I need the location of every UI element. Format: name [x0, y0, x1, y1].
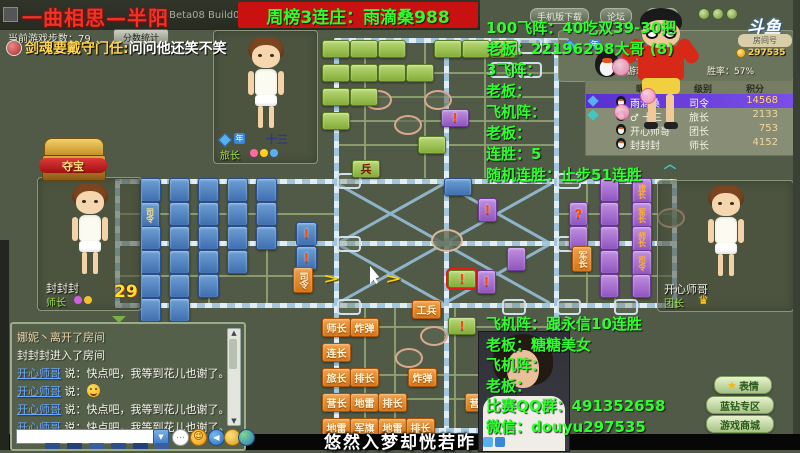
ranking-score: 2133 [734, 109, 778, 120]
board-slot[interactable] [337, 236, 361, 252]
side-button[interactable]: 蓝钻专区 [706, 396, 774, 414]
taskbar-item[interactable] [67, 443, 82, 449]
move-arrow-icon: > [385, 272, 401, 287]
fan-badge-icon [483, 437, 493, 447]
board-piece[interactable] [169, 202, 190, 226]
player-level-left: 师长 [46, 294, 66, 309]
board-camp [395, 348, 423, 368]
overlay-info-line: 比赛QQ群：491352658 [486, 396, 665, 417]
butterfly-badge-icon [84, 296, 92, 304]
board-piece[interactable] [140, 298, 161, 322]
overlay-info-line: 老板：22196298大哥 (8) [486, 39, 676, 60]
board-piece[interactable] [169, 298, 190, 322]
overlay-info-line: 飞机阵： [486, 102, 676, 123]
board-piece[interactable] [322, 64, 350, 82]
chat-message: 开心师哥 说： [17, 383, 223, 401]
board-piece[interactable] [600, 250, 619, 274]
board-piece[interactable]: 师长 [322, 318, 351, 337]
board-piece[interactable] [350, 40, 378, 58]
chat-collapse-handle[interactable] [112, 316, 126, 323]
board-piece[interactable] [227, 250, 248, 274]
board-piece[interactable] [600, 202, 619, 226]
ranking-score: 4152 [734, 137, 778, 148]
player-level-right: 团长 [664, 295, 684, 310]
flower-badge-icon [270, 149, 278, 157]
speaker-icon[interactable]: ◀ [208, 429, 225, 446]
board-camp [394, 115, 422, 135]
board-piece[interactable]: 司令 [632, 250, 652, 276]
board-piece[interactable] [140, 178, 161, 202]
coin-counter: 297535 [736, 48, 786, 58]
board-piece[interactable] [600, 274, 619, 298]
flower-badge-icon [250, 149, 258, 157]
board-piece[interactable] [198, 226, 219, 250]
coin-icon [736, 48, 746, 58]
chat-message: 封封封进入了房间 [17, 347, 223, 365]
board-piece[interactable]: 司令 [140, 202, 160, 228]
avatar-right-player [696, 185, 756, 277]
crown-badge-icon: ♛ [698, 293, 709, 307]
board-piece[interactable]: ! [478, 198, 497, 222]
board-piece[interactable]: 师长 [632, 226, 652, 252]
overlay-info-line: 老板： [486, 81, 676, 102]
board-piece[interactable]: ! [448, 270, 476, 288]
board-piece[interactable]: 营长 [322, 393, 351, 412]
overlay-info-line: 3飞阵： [486, 60, 676, 81]
board-piece[interactable] [140, 274, 161, 298]
stream-subtitle: 悠然入梦却恍若昨 [324, 428, 476, 453]
player-panel-top: 年 十三 旅长 [213, 30, 318, 164]
board-piece[interactable] [198, 250, 219, 274]
board-piece[interactable]: ! [477, 270, 496, 294]
globe-icon[interactable] [238, 429, 255, 446]
overlay-info-line: 老板： [486, 376, 665, 397]
board-piece[interactable]: 炸弹 [350, 318, 379, 337]
chat-panel: 娜妮丶离开了房间封封封进入了房间开心师哥 说：快点吧，我等到花儿也谢了。开心师哥… [10, 322, 246, 451]
board-piece[interactable]: 军长 [572, 246, 592, 272]
board-piece[interactable] [227, 202, 248, 226]
message-bubble-icon[interactable]: … [172, 429, 189, 446]
board-piece[interactable]: ! [296, 222, 317, 246]
overlay-info-line: 随机连胜：止步51连胜 [486, 165, 676, 186]
chat-input[interactable] [16, 429, 154, 444]
board-piece[interactable] [169, 250, 190, 274]
board-piece[interactable]: 连长 [322, 343, 351, 362]
board-slot[interactable] [614, 299, 638, 315]
board-piece[interactable] [406, 64, 434, 82]
overlay-info-line: 微信：douyu297535 [486, 417, 665, 438]
board-piece[interactable] [444, 178, 472, 196]
winrate-label: 胜率：57% [707, 64, 754, 77]
chat-message: 娜妮丶离开了房间 [17, 329, 223, 347]
weekly-banner: 周榜3连庄：雨滴桑988 [238, 2, 478, 28]
board-piece[interactable] [322, 40, 350, 58]
overlay-info-top: 100飞阵：40吃双39-30把老板：22196298大哥 (8)3飞阵：老板：… [486, 18, 676, 186]
fan-badge-icon [495, 437, 505, 447]
board-rail [115, 303, 677, 308]
board-piece[interactable]: 地雷 [350, 393, 379, 412]
board-piece[interactable]: 排长 [350, 368, 379, 387]
avatar [6, 40, 22, 56]
board-piece[interactable] [169, 226, 190, 250]
treasure-label: 夺宝 [39, 158, 107, 173]
board-piece[interactable] [418, 136, 446, 154]
overlay-info-line: 100飞阵：40吃双39-30把 [486, 18, 676, 39]
board-slot[interactable] [557, 299, 581, 315]
side-button[interactable]: 游戏商城 [706, 415, 774, 433]
restore-button[interactable] [712, 8, 724, 20]
board-piece[interactable] [140, 226, 161, 250]
turn-timer: 29 [114, 282, 138, 302]
overlay-info-line: 飞机阵：跟永信10连胜 [486, 314, 665, 335]
board-piece[interactable] [256, 226, 277, 250]
ranking-score: 753 [734, 123, 778, 134]
board-slot[interactable] [502, 299, 526, 315]
board-piece[interactable]: 司令 [293, 267, 313, 293]
taskbar-item[interactable] [89, 443, 104, 449]
board-piece[interactable] [322, 88, 350, 106]
window-icon [3, 7, 18, 22]
danmaku-message: 问问他还笑不笑 [129, 38, 227, 58]
overlay-info-line: 连胜：5 [486, 144, 676, 165]
taskbar-item[interactable] [133, 443, 148, 449]
chat-message-list: 娜妮丶离开了房间封封封进入了房间开心师哥 说：快点吧，我等到花儿也谢了。开心师哥… [17, 329, 223, 437]
board-piece[interactable]: 炸弹 [408, 368, 437, 387]
butterfly-badge-icon [74, 296, 82, 304]
room-number-label: 房间号 [738, 34, 792, 47]
chat-scrollbar[interactable]: ▲▼ [227, 328, 241, 426]
taskbar-item[interactable] [155, 443, 170, 449]
board-piece[interactable] [227, 178, 248, 202]
window-edge [0, 240, 9, 450]
overlay-info-line: 老板：糖糖美女 [486, 335, 665, 356]
board-piece[interactable]: 工兵 [412, 300, 441, 319]
board-center-node [431, 229, 463, 252]
player-name-top: 十三 [266, 131, 288, 147]
avatar-left-player [60, 183, 120, 275]
board-piece[interactable] [198, 178, 219, 202]
close-button[interactable] [726, 8, 738, 20]
board-piece[interactable] [600, 226, 619, 250]
ranking-score: 14568 [734, 95, 778, 106]
board-piece[interactable] [350, 88, 378, 106]
danmaku-overlay: 剑魂要戴守门任: 问问他还笑不笑 [6, 38, 227, 58]
board-piece[interactable] [140, 250, 161, 274]
board-piece[interactable]: 排长 [378, 393, 407, 412]
board-piece[interactable] [256, 202, 277, 226]
board-piece[interactable] [434, 40, 462, 58]
side-button[interactable]: ★表情 [714, 376, 772, 394]
taskbar-item[interactable] [111, 443, 126, 449]
board-camp [424, 90, 452, 110]
star-icon: ★ [727, 379, 737, 392]
board-piece[interactable]: ? [569, 202, 588, 226]
player-panel-right: 开心师哥 团长 ♛ [657, 180, 794, 312]
board-piece[interactable] [378, 64, 406, 82]
stream-title: 一曲相思—半阳 [22, 2, 169, 31]
player-level-top: 旅长 [220, 147, 240, 162]
board-piece[interactable] [507, 247, 526, 271]
board-piece[interactable] [198, 202, 219, 226]
emoji-icon[interactable]: ☺ [190, 429, 207, 446]
overlay-info-line: 老板： [486, 123, 676, 144]
danmaku-username: 剑魂要戴守门任: [25, 38, 129, 58]
board-piece[interactable] [632, 274, 651, 298]
diamond-icon [218, 133, 232, 147]
overlay-info-bottom: 飞机阵：跟永信10连胜老板：糖糖美女飞机阵：老板：比赛QQ群：491352658… [486, 314, 665, 437]
board-piece[interactable] [256, 178, 277, 202]
board-piece[interactable] [169, 178, 190, 202]
board-piece[interactable] [169, 274, 190, 298]
board-piece[interactable] [322, 112, 350, 130]
board-piece[interactable]: 军长 [632, 202, 652, 228]
board-piece[interactable]: 旅长 [322, 368, 351, 387]
chat-message: 开心师哥 说：快点吧，我等到花儿也谢了。 [17, 365, 223, 383]
overlay-info-line: 飞机阵： [486, 355, 665, 376]
board-piece[interactable]: ! [448, 317, 476, 335]
flower-badge-icon [260, 149, 268, 157]
avatar-top-player [236, 37, 296, 129]
board-piece[interactable] [378, 40, 406, 58]
board-piece[interactable] [227, 226, 248, 250]
move-arrow-icon: > [323, 272, 339, 287]
board-camp [420, 326, 448, 346]
board-piece[interactable]: ! [441, 109, 469, 127]
player-panel-left: 封封封 师长 29 [37, 177, 142, 311]
chat-message: 开心师哥 说：快点吧，我等到花儿也谢了。 [17, 401, 223, 419]
board-piece[interactable] [350, 64, 378, 82]
grin-emoji-icon [87, 384, 100, 397]
board-piece[interactable]: 兵 [352, 160, 380, 178]
year-badge-icon: 年 [234, 133, 245, 144]
board-piece[interactable] [198, 274, 219, 298]
treasure-chest-button[interactable]: 夺宝 [42, 138, 104, 180]
board-slot[interactable] [337, 299, 361, 315]
window-edge [793, 0, 800, 450]
taskbar-item[interactable] [45, 443, 60, 449]
